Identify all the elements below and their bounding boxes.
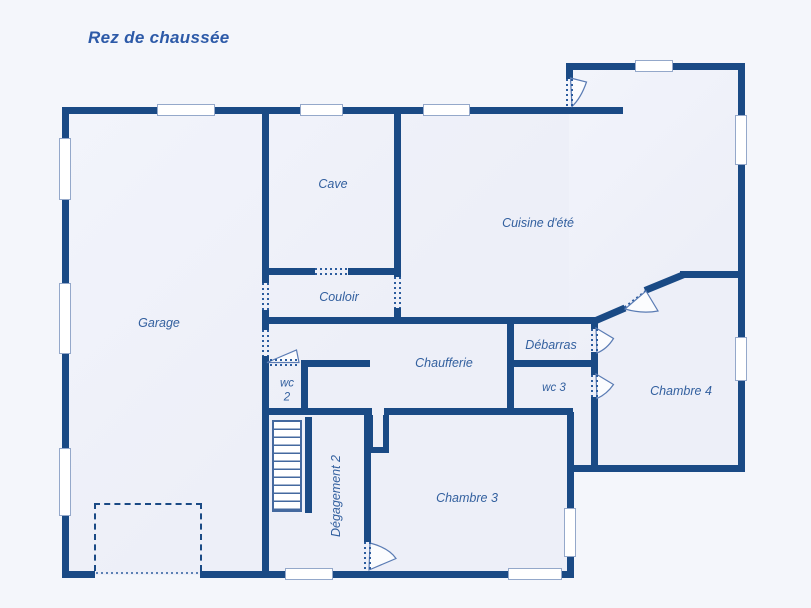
room-label-wc2-line2: 2 <box>280 391 294 405</box>
garage-door-threshold <box>96 572 200 574</box>
wall-segment <box>591 321 598 329</box>
room-label-wc2: wc 2 <box>280 377 294 406</box>
wall-segment <box>301 360 308 415</box>
door-opening <box>262 283 269 310</box>
wall-segment <box>262 317 597 324</box>
window <box>735 337 747 381</box>
room-label-chambre3: Chambre 3 <box>436 491 498 505</box>
door-opening <box>394 277 401 308</box>
door-opening <box>315 268 348 275</box>
room-label-garage: Garage <box>138 316 180 330</box>
wall-segment <box>262 408 372 415</box>
room-label-couloir: Couloir <box>319 290 359 304</box>
wall-segment <box>566 63 573 79</box>
window <box>300 104 343 116</box>
window <box>59 283 71 354</box>
window <box>285 568 333 580</box>
wall-segment <box>364 412 371 542</box>
window <box>157 104 215 116</box>
wall-segment <box>507 360 598 367</box>
room-label-chambre4: Chambre 4 <box>650 384 712 398</box>
room-label-wc3: wc 3 <box>542 381 566 395</box>
garage-door <box>94 503 202 571</box>
window <box>508 568 562 580</box>
wall-segment <box>308 360 370 367</box>
door-opening <box>566 79 573 107</box>
wall-segment <box>384 408 573 415</box>
room-label-cave: Cave <box>318 177 347 191</box>
door-opening <box>591 375 598 397</box>
window <box>564 508 576 557</box>
door-opening <box>262 330 269 356</box>
wall-segment <box>262 268 315 275</box>
plan-title: Rez de chaussée <box>88 28 230 48</box>
wall-segment <box>305 417 312 513</box>
window <box>59 138 71 200</box>
room-label-wc2-line1: wc <box>280 377 294 391</box>
window <box>59 448 71 516</box>
room-label-cuisine: Cuisine d'été <box>502 216 574 230</box>
floor-plan: Rez de chaussée <box>0 0 811 608</box>
wall-segment <box>62 571 95 578</box>
wall-segment <box>262 356 269 578</box>
staircase <box>272 420 302 512</box>
wall-segment <box>262 107 269 283</box>
door-opening <box>364 542 371 571</box>
room-label-chaufferie: Chaufferie <box>415 356 473 370</box>
window <box>635 60 673 72</box>
window <box>735 115 747 165</box>
room-label-degagement2: Dégagement 2 <box>329 455 343 537</box>
wall-segment <box>591 352 598 375</box>
room-label-debarras: Débarras <box>525 338 576 352</box>
wall-segment <box>591 397 598 468</box>
door-opening <box>591 329 598 352</box>
window <box>423 104 470 116</box>
wall-segment <box>680 271 745 278</box>
door-opening <box>270 359 300 366</box>
wall-segment <box>394 110 401 277</box>
